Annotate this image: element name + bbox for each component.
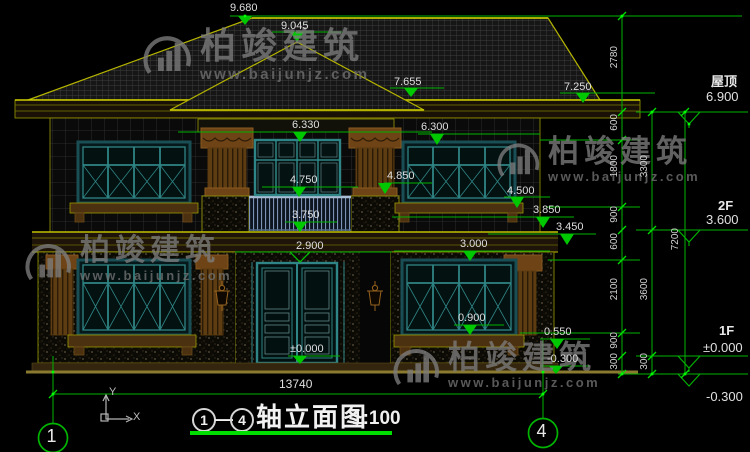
right-level-symbols [678,112,700,386]
chain-dim: 300 [610,353,620,370]
title-axis-to-circle: 4 [230,408,254,432]
chain-dim: 2780 [610,46,620,68]
total-width-dim: 13740 [279,379,312,390]
elevation-mark: 6.330 [292,120,320,131]
window-2f-left [78,142,190,203]
elevation-mark: 4.850 [387,171,415,182]
ucs-x-label: X [133,412,140,423]
elevation-linework [0,0,750,452]
elevation-mark: ±0.000 [290,344,324,355]
elevation-mark: 3.850 [533,205,561,216]
elevation-mark: -0.300 [547,354,578,365]
balcony-column-left [201,128,253,232]
chain-dim: 1800 [610,155,620,177]
elevation-mark: 7.250 [564,82,592,93]
elevation-mark: 3.000 [460,239,488,250]
drawing-scale: 1:100 [352,409,401,428]
chain-dim: 900 [610,206,620,223]
chain-dim: 7200 [671,228,681,250]
pilaster-1f-left-a [46,255,78,335]
chain-dim: 2100 [610,278,620,300]
elevation-mark: 9.045 [281,21,309,32]
level-value-1f: ±0.000 [703,341,743,354]
elevation-mark: 2.900 [296,241,324,252]
level-label-1f: 1F [719,324,734,337]
ucs-icon [101,395,132,422]
elevation-mark: 3.750 [292,210,320,221]
elevation-mark: 3.450 [556,222,584,233]
chain-dim: 3600 [640,278,650,300]
elevation-mark: 0.550 [544,327,572,338]
chain-dim: 3300 [640,155,650,177]
level-value-roof: 6.900 [706,90,739,103]
window-2f-right [403,142,515,203]
chain-dim: 900 [610,332,620,349]
chain-dim: 600 [610,114,620,131]
elevation-mark: 7.655 [394,77,422,88]
elevation-mark: 0.900 [458,313,486,324]
chain-dim: 600 [610,233,620,250]
title-underline [190,431,392,435]
cad-elevation-drawing: 柏竣建筑 www.baijunjz.com 柏竣建筑 www.baijunjz.… [0,0,750,452]
ucs-y-label: Y [109,387,116,398]
level-value-base: -0.300 [706,390,743,403]
level-label-roof: 屋顶 [711,75,737,88]
axis-bubble-4-number: 4 [528,418,555,445]
title-axis-from-circle: 1 [192,408,216,432]
axis-bubble-1-number: 1 [38,423,65,450]
level-value-2f: 3.600 [706,213,739,226]
elevation-mark: 4.750 [290,175,318,186]
window-1f-left [78,260,190,335]
chain-dim: 300 [640,353,650,370]
elevation-mark: 6.300 [421,122,449,133]
elevation-mark: 4.500 [507,186,535,197]
elevation-mark: 9.680 [230,3,258,14]
level-label-2f: 2F [718,199,733,212]
